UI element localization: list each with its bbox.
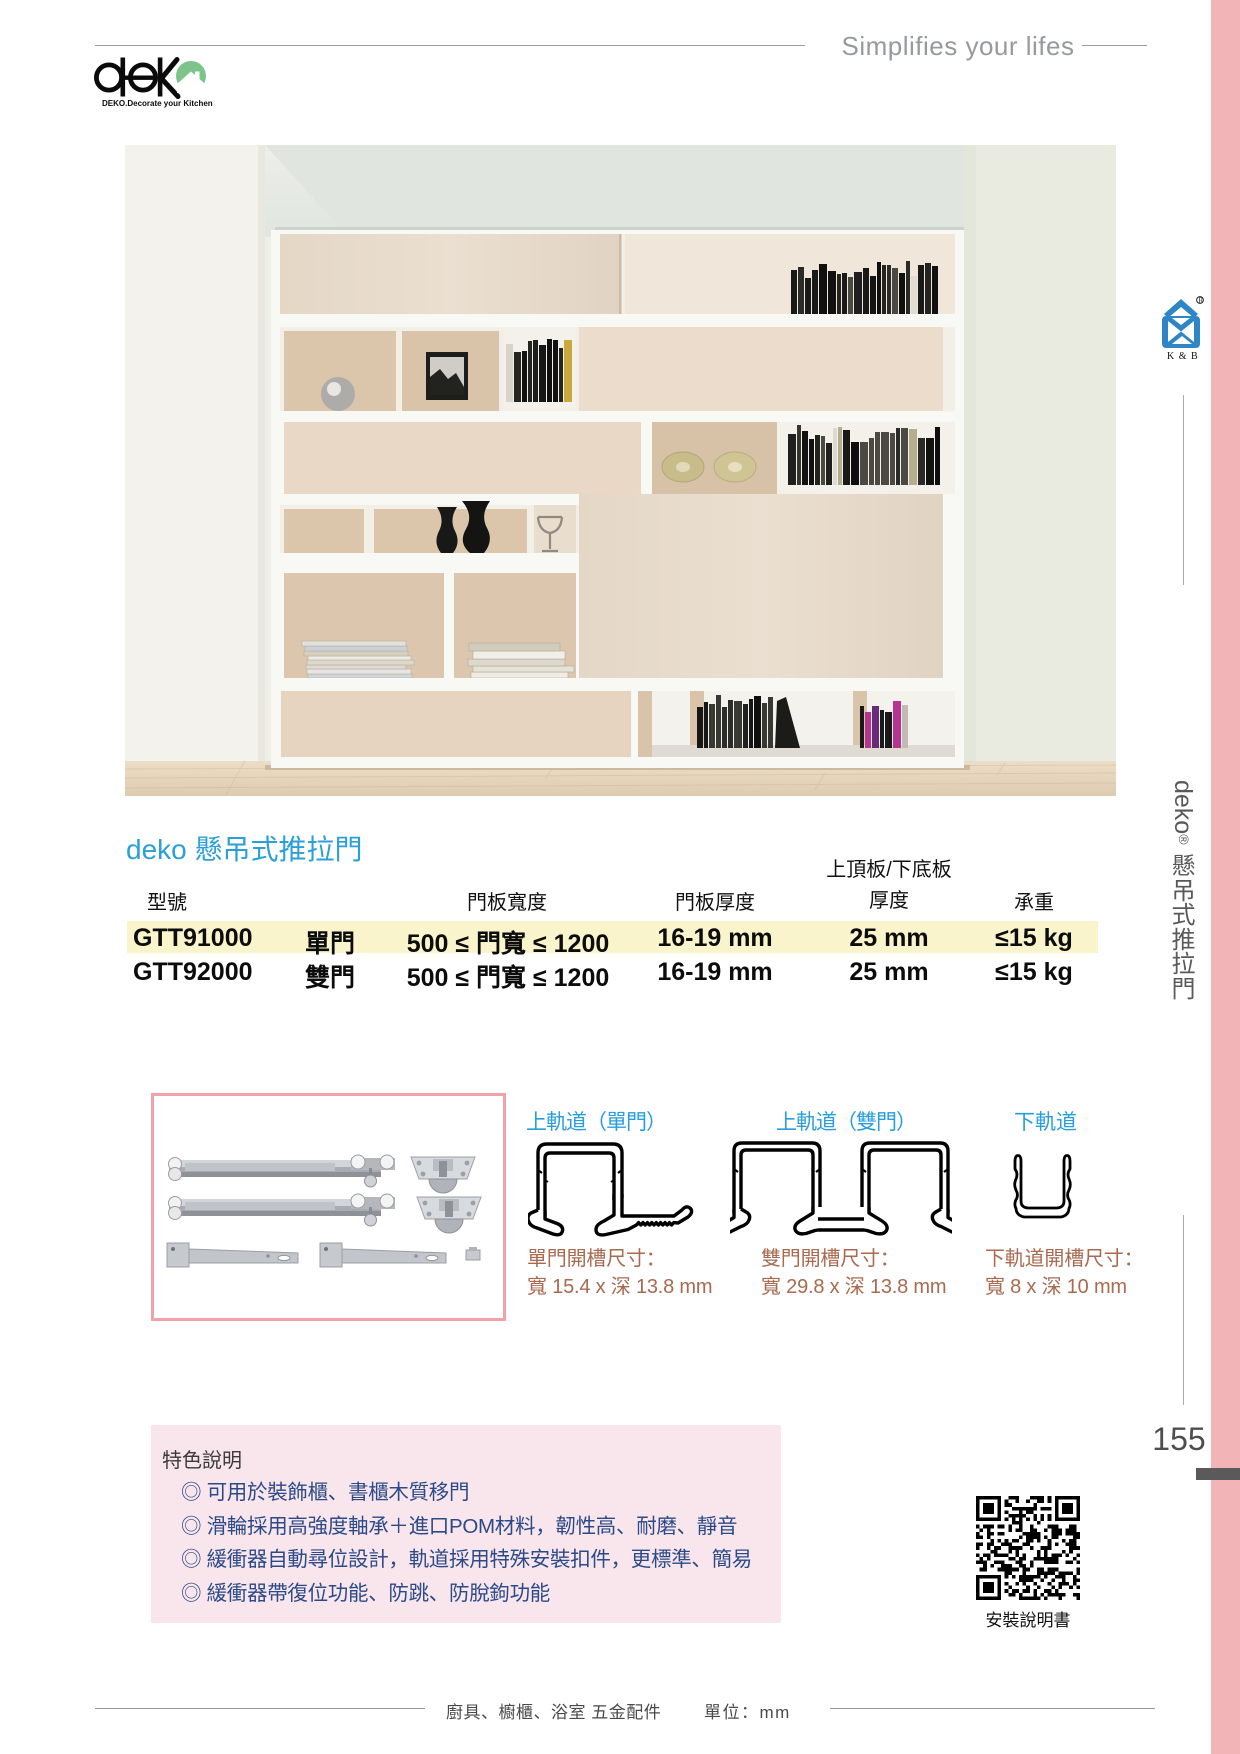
svg-text:R: R [1199, 297, 1204, 305]
svg-text:K & B: K & B [1167, 351, 1199, 362]
svg-text:DEKO.Decorate your Kitchen: DEKO.Decorate your Kitchen [102, 99, 213, 108]
